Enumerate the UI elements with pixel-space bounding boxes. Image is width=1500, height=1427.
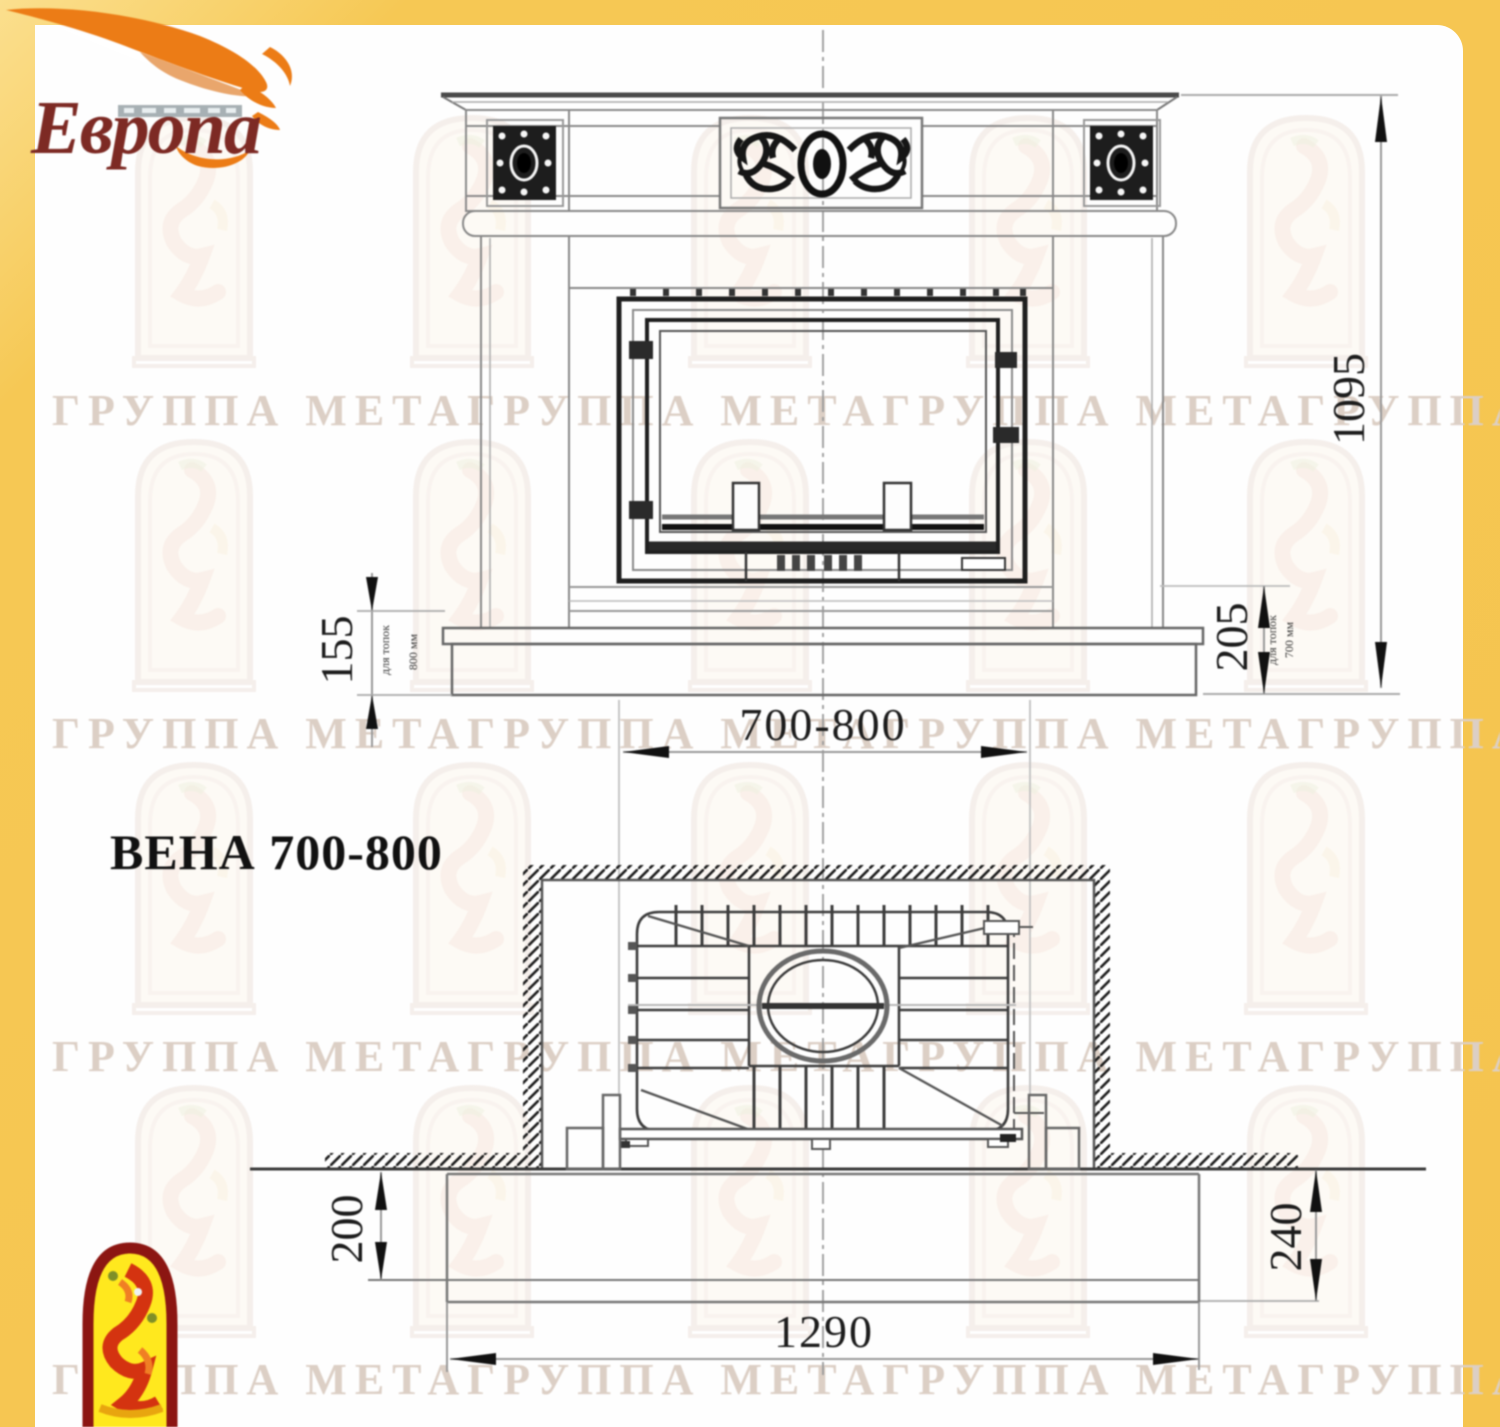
- svg-text:для топок: для топок: [1265, 615, 1279, 665]
- svg-text:800 мм: 800 мм: [406, 634, 420, 671]
- svg-text:ГРУППА МЕТАГРУППА МЕТАГРУППА М: ГРУППА МЕТАГРУППА МЕТАГРУППА МЕТАГРУППА …: [52, 386, 1500, 435]
- svg-text:200: 200: [321, 1195, 372, 1264]
- svg-text:155: 155: [311, 616, 362, 685]
- svg-text:ВЕНА 700-800: ВЕНА 700-800: [110, 824, 443, 880]
- svg-text:240: 240: [1260, 1203, 1311, 1272]
- svg-text:ГРУППА МЕТАГРУППА МЕТАГРУППА М: ГРУППА МЕТАГРУППА МЕТАГРУППА МЕТАГРУППА …: [52, 1355, 1500, 1404]
- svg-text:205: 205: [1206, 603, 1257, 672]
- svg-text:700-800: 700-800: [739, 699, 906, 750]
- svg-text:ГРУППА МЕТАГРУППА МЕТАГРУППА М: ГРУППА МЕТАГРУППА МЕТАГРУППА МЕТАГРУППА …: [52, 1032, 1500, 1081]
- svg-text:для топок: для топок: [378, 625, 392, 675]
- svg-text:1095: 1095: [1323, 353, 1374, 445]
- svg-text:1290: 1290: [774, 1306, 874, 1357]
- svg-text:Европа: Европа: [30, 86, 261, 170]
- svg-text:700 мм: 700 мм: [1282, 622, 1296, 659]
